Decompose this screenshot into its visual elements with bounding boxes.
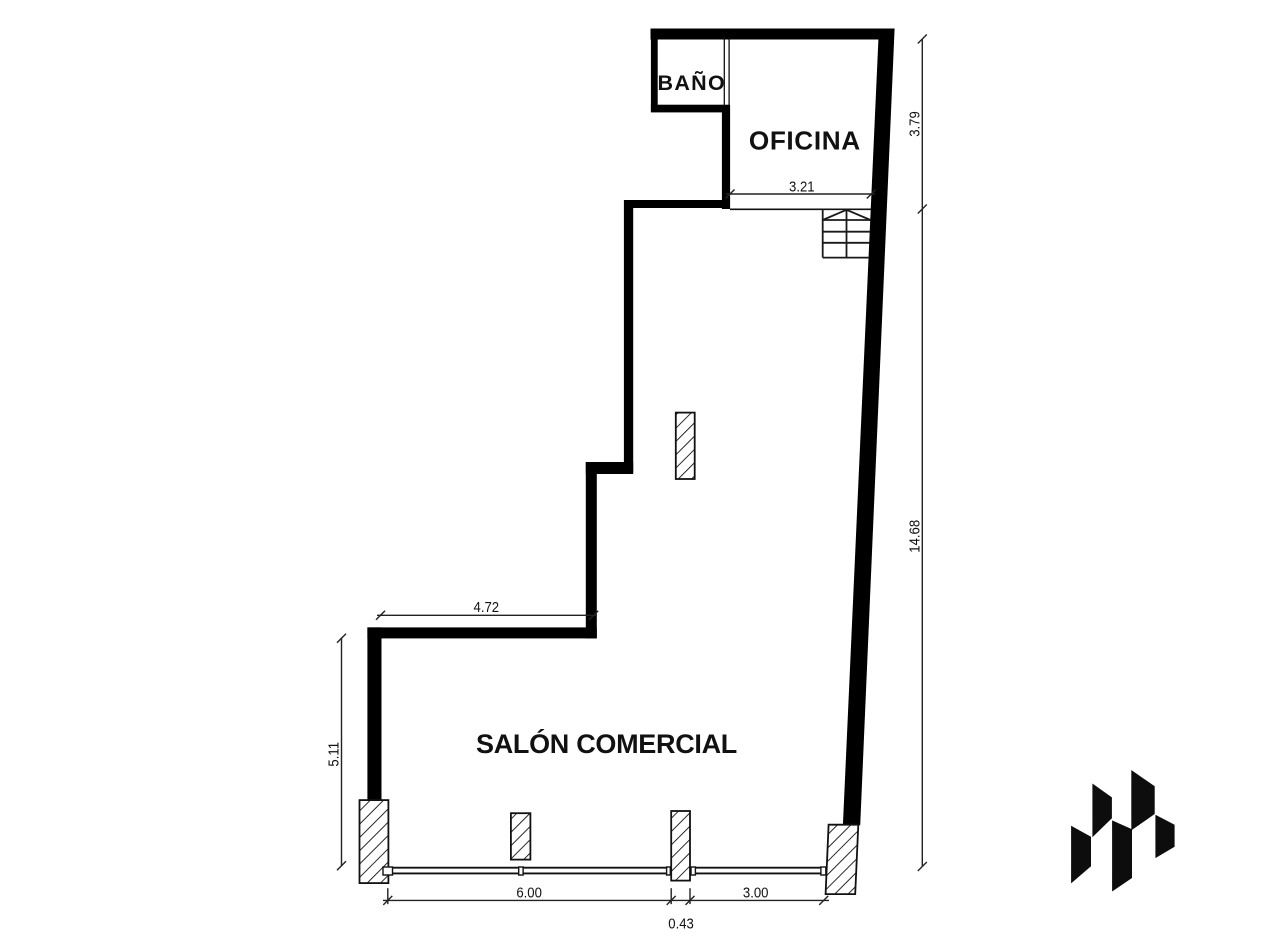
svg-text:BAÑO: BAÑO [658, 70, 727, 95]
svg-text:4.72: 4.72 [474, 598, 500, 615]
svg-text:5.11: 5.11 [325, 742, 342, 767]
svg-text:3.21: 3.21 [789, 178, 815, 195]
svg-text:0.43: 0.43 [668, 915, 694, 932]
svg-text:14.68: 14.68 [906, 520, 923, 553]
svg-text:3.00: 3.00 [743, 884, 769, 901]
svg-text:6.00: 6.00 [516, 884, 542, 901]
svg-text:OFICINA: OFICINA [749, 125, 861, 155]
svg-text:SALÓN COMERCIAL: SALÓN COMERCIAL [476, 728, 737, 759]
svg-text:3.79: 3.79 [906, 111, 923, 137]
